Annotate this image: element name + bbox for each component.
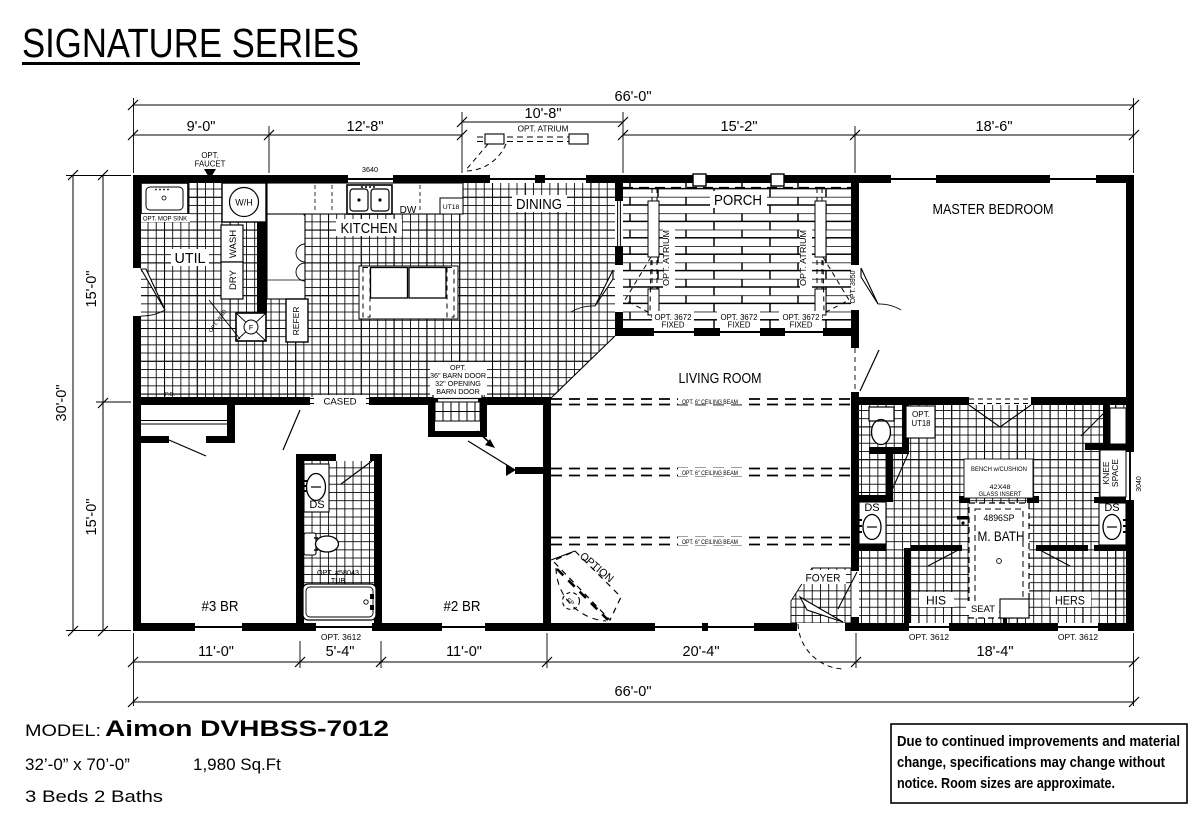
svg-text:4896SP: 4896SP: [984, 513, 1015, 524]
svg-text:FIXED: FIXED: [728, 320, 751, 330]
svg-text:SIGNATURE SERIES: SIGNATURE SERIES: [22, 20, 359, 66]
svg-text:OPT. ATRIUM: OPT. ATRIUM: [661, 230, 671, 286]
svg-text:HERS: HERS: [1055, 594, 1085, 608]
svg-text:18'-4": 18'-4": [977, 644, 1014, 660]
svg-text:OPT. 6" CEILING BEAM: OPT. 6" CEILING BEAM: [682, 539, 738, 546]
svg-text:MASTER BEDROOM: MASTER BEDROOM: [933, 202, 1054, 218]
svg-text:UT18: UT18: [443, 204, 460, 211]
svg-text:KITCHEN: KITCHEN: [341, 221, 398, 237]
svg-text:15'-0": 15'-0": [84, 271, 100, 308]
svg-text:PORCH: PORCH: [714, 193, 762, 209]
svg-text:11'-0": 11'-0": [198, 644, 234, 660]
svg-text:66'-0": 66'-0": [615, 89, 652, 105]
svg-text:10'-8": 10'-8": [525, 106, 562, 122]
svg-text:11'-0": 11'-0": [446, 644, 482, 660]
svg-text:OPT. ATRIUM: OPT. ATRIUM: [518, 125, 569, 134]
svg-text:OPT. 6" CEILING BEAM: OPT. 6" CEILING BEAM: [682, 470, 738, 477]
svg-text:#3 BR: #3 BR: [202, 599, 239, 615]
svg-text:BENCH w/CUSHION: BENCH w/CUSHION: [971, 466, 1027, 473]
svg-text:#2 BR: #2 BR: [444, 599, 481, 615]
svg-text:12'-8": 12'-8": [347, 119, 384, 135]
svg-text:Aimon DVHBSS-7012: Aimon DVHBSS-7012: [105, 716, 389, 741]
svg-text:WASH: WASH: [228, 230, 239, 258]
svg-text:W/H: W/H: [235, 198, 253, 208]
svg-text:F: F: [249, 325, 253, 332]
svg-text:OPT. 3612: OPT. 3612: [1058, 632, 1098, 642]
svg-text:FAUCET: FAUCET: [195, 160, 226, 169]
svg-text:MODEL:: MODEL:: [25, 722, 101, 740]
svg-text:5'-4": 5'-4": [326, 644, 355, 660]
svg-text:FIXED: FIXED: [790, 320, 813, 330]
svg-text:OPT. 3950: OPT. 3950: [850, 270, 857, 303]
svg-text:15'-2": 15'-2": [721, 119, 758, 135]
svg-text:32’-0” x 70’-0”: 32’-0” x 70’-0”: [25, 755, 130, 774]
svg-text:20'-4": 20'-4": [683, 644, 720, 660]
svg-text:66'-0": 66'-0": [615, 684, 652, 700]
svg-text:DS: DS: [309, 499, 324, 511]
svg-text:1,980 Sq.Ft: 1,980 Sq.Ft: [193, 755, 281, 774]
svg-text:Due to continued improvements: Due to continued improvements and materi…: [897, 734, 1180, 750]
svg-text:3 Beds 2 Baths: 3 Beds 2 Baths: [25, 787, 163, 806]
svg-text:SEAT: SEAT: [971, 604, 995, 615]
svg-text:3040: 3040: [1136, 476, 1143, 492]
svg-text:HIS: HIS: [926, 594, 946, 608]
svg-text:UT18: UT18: [912, 418, 931, 428]
svg-text:OPT. MOP SINK: OPT. MOP SINK: [143, 217, 187, 223]
svg-text:DW: DW: [400, 205, 417, 216]
svg-text:DS: DS: [1104, 502, 1119, 514]
svg-text:LIVING ROOM: LIVING ROOM: [679, 371, 762, 387]
svg-text:GLASS INSERT: GLASS INSERT: [979, 491, 1022, 498]
svg-text:18'-6": 18'-6": [976, 119, 1013, 135]
svg-text:CASED: CASED: [324, 397, 357, 408]
svg-text:3640: 3640: [362, 165, 378, 174]
svg-text:SPACE: SPACE: [1110, 459, 1120, 488]
svg-text:42X48: 42X48: [990, 484, 1011, 491]
svg-text:DS: DS: [864, 502, 879, 514]
svg-text:OPT. 6" CEILING BEAM: OPT. 6" CEILING BEAM: [682, 399, 738, 406]
svg-text:M. BATH: M. BATH: [978, 529, 1025, 544]
svg-text:UTIL: UTIL: [175, 251, 206, 267]
svg-text:9'-0": 9'-0": [187, 119, 216, 135]
svg-text:15'-0": 15'-0": [84, 499, 100, 536]
svg-text:FOYER: FOYER: [806, 573, 841, 585]
svg-text:OPT. 3612: OPT. 3612: [909, 632, 949, 642]
svg-text:OPT. ATRIUM: OPT. ATRIUM: [798, 230, 808, 286]
svg-text:REFER: REFER: [291, 307, 301, 336]
svg-text:TUB: TUB: [331, 576, 346, 585]
svg-text:FIXED: FIXED: [662, 320, 685, 330]
svg-text:change, specifications may cha: change, specifications may change withou…: [897, 755, 1165, 771]
svg-text:DRY: DRY: [228, 269, 239, 290]
svg-text:OPT. 3612: OPT. 3612: [321, 632, 361, 642]
svg-text:notice. Room sizes are approxi: notice. Room sizes are approximate.: [897, 776, 1115, 792]
svg-text:30'-0": 30'-0": [54, 385, 70, 422]
svg-text:BARN DOOR: BARN DOOR: [436, 387, 480, 396]
svg-text:DINING: DINING: [516, 197, 562, 213]
svg-text:P.D.: P.D.: [165, 392, 175, 398]
